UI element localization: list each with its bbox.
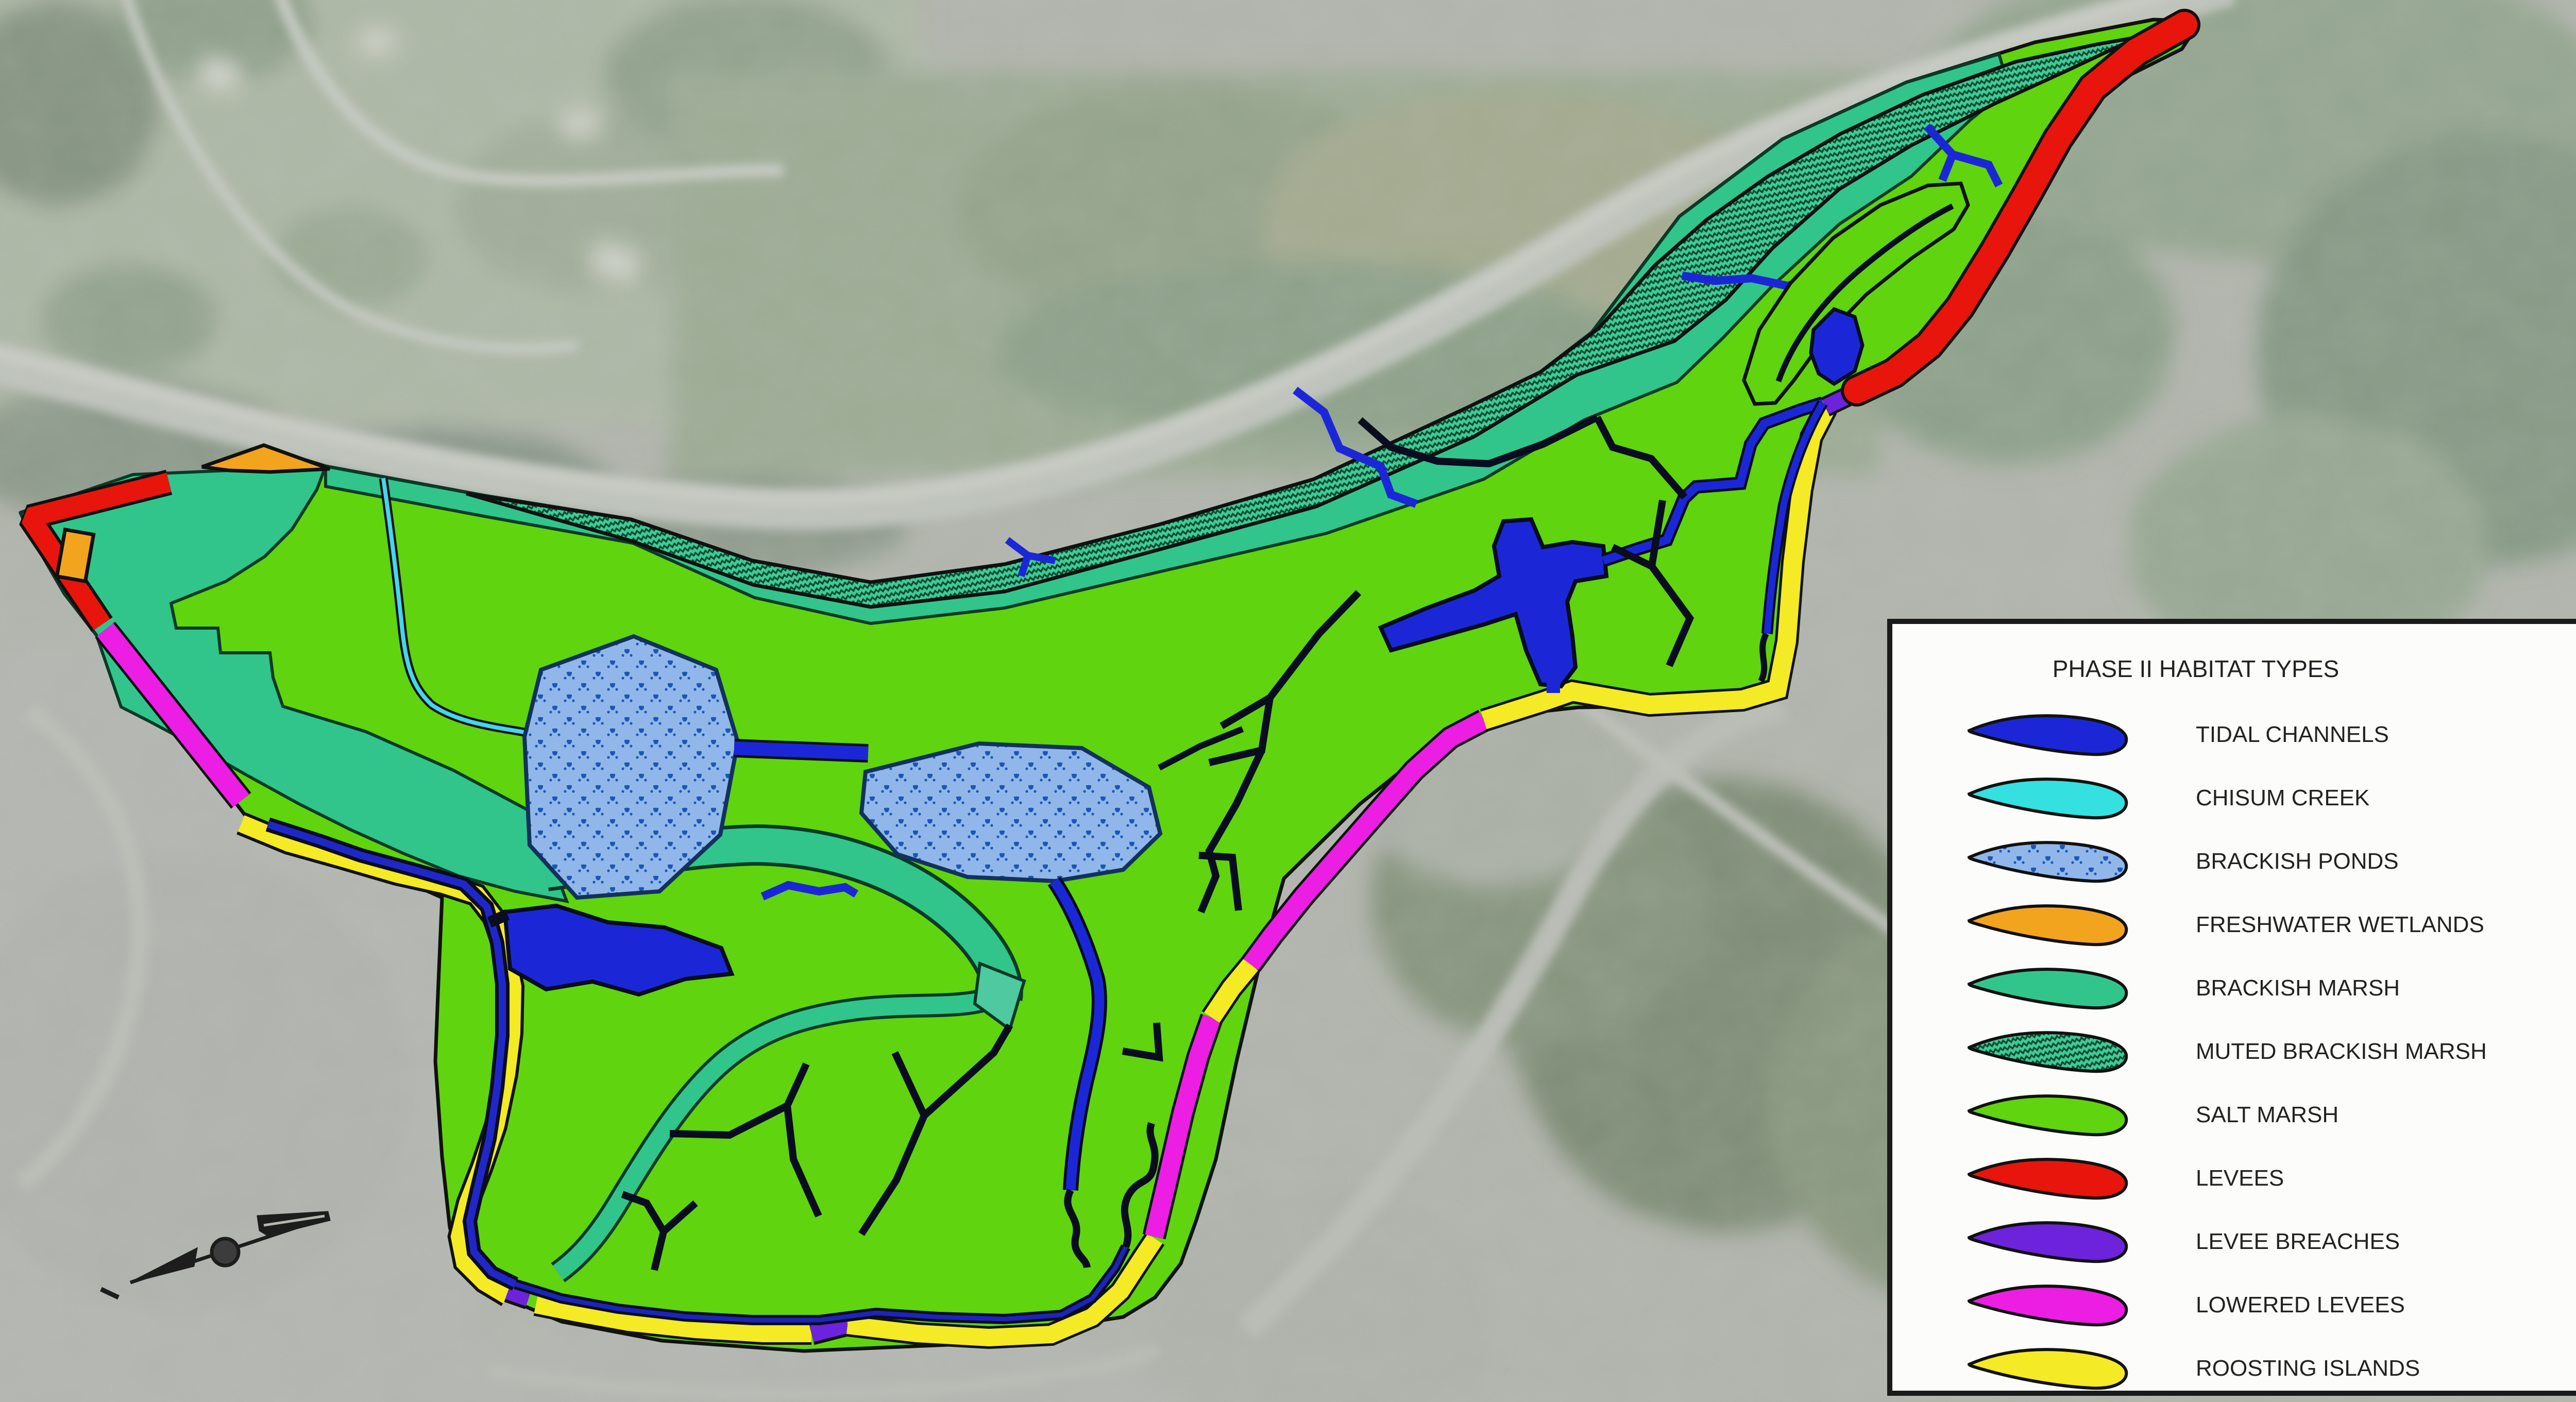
svg-text:LEVEES: LEVEES	[2196, 1165, 2284, 1191]
svg-text:PHASE II HABITAT TYPES: PHASE II HABITAT TYPES	[2053, 655, 2339, 682]
svg-text:CHISUM CREEK: CHISUM CREEK	[2196, 785, 2369, 810]
svg-text:BRACKISH PONDS: BRACKISH PONDS	[2196, 849, 2399, 874]
svg-text:SALT MARSH: SALT MARSH	[2196, 1102, 2338, 1127]
svg-text:BRACKISH MARSH: BRACKISH MARSH	[2196, 975, 2400, 1001]
svg-text:MUTED BRACKISH MARSH: MUTED BRACKISH MARSH	[2196, 1039, 2487, 1064]
svg-text:TIDAL CHANNELS: TIDAL CHANNELS	[2196, 722, 2389, 747]
svg-text:LEVEE BREACHES: LEVEE BREACHES	[2196, 1229, 2400, 1254]
svg-text:ROOSTING ISLANDS: ROOSTING ISLANDS	[2196, 1356, 2420, 1381]
svg-text:LOWERED LEVEES: LOWERED LEVEES	[2196, 1292, 2405, 1317]
svg-text:FRESHWATER WETLANDS: FRESHWATER WETLANDS	[2196, 912, 2484, 937]
